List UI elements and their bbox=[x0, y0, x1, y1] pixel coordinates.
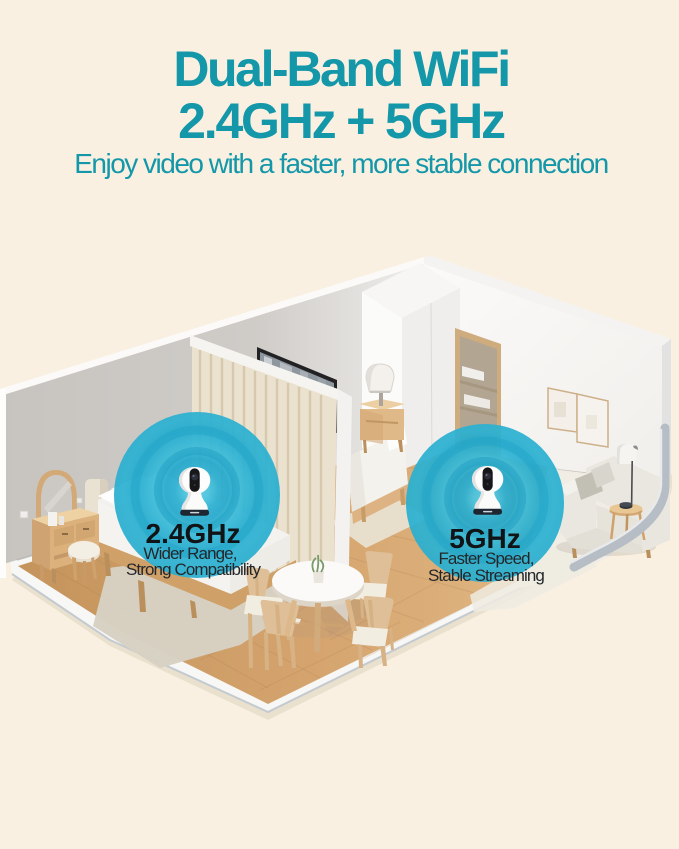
svg-text:Enjoy video with a faster, mor: Enjoy video with a faster, more stable c… bbox=[74, 148, 608, 179]
svg-text:Dual-Band WiFi: Dual-Band WiFi bbox=[173, 41, 508, 97]
svg-text:Strong Compatibility: Strong Compatibility bbox=[126, 560, 262, 579]
svg-text:Stable Streaming: Stable Streaming bbox=[428, 566, 544, 585]
svg-text:2.4GHz + 5GHz: 2.4GHz + 5GHz bbox=[178, 93, 505, 149]
